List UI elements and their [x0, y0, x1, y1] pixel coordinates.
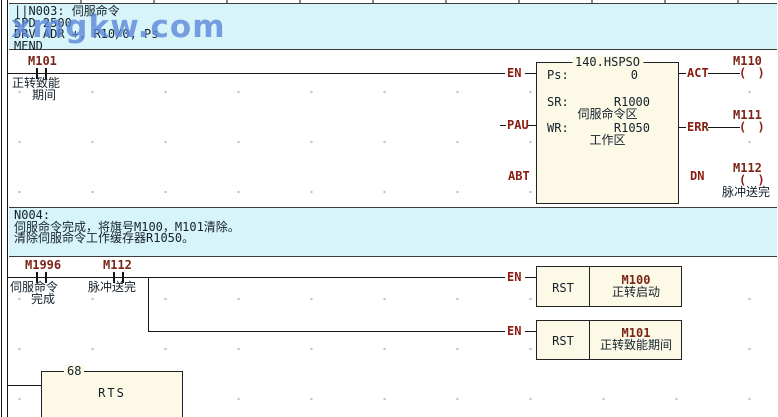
rst-op: RST [537, 335, 589, 347]
pin-abt: ABT [508, 170, 530, 182]
contact-comment: 期间 [12, 89, 76, 101]
wire [500, 125, 506, 126]
pin-en: EN [507, 271, 521, 283]
wire [525, 73, 536, 74]
wire [528, 125, 536, 126]
rst-block-m100[interactable]: RST M100 正转启动 [536, 266, 682, 307]
wire [525, 277, 536, 278]
rts-block[interactable]: 68 RTS [41, 371, 183, 417]
function-block-hspso[interactable]: 140.HSPSO Ps: 0 SR: R1000 伺服命令区 WR: R105… [536, 62, 679, 204]
pin-pau: PAU [507, 119, 529, 131]
ladder-editor: ||N003: 伺服命令 SPD 2500 DRV ADR +, R10/0, … [0, 0, 778, 417]
pin-act: ACT [687, 67, 709, 79]
left-power-rail-outer [1, 0, 2, 417]
pin-dn: DN [690, 170, 704, 182]
watermark: xmgkw.com [11, 12, 226, 43]
wire [679, 127, 686, 128]
wire [525, 331, 536, 332]
contact-device-label: M1996 [25, 259, 61, 271]
rst-comment: 正转致能期间 [590, 339, 682, 351]
wire [708, 127, 740, 128]
coil-m110[interactable]: ( ) [739, 67, 767, 79]
wire [8, 73, 505, 74]
network-comment-n004[interactable]: N004: 伺服命令完成，将旗号M100，M101清除。 清除伺服命令工作缓存器… [9, 207, 777, 257]
wire [8, 385, 41, 386]
param-comment: 伺服命令区 [537, 108, 678, 120]
rst-op: RST [537, 282, 589, 294]
param-label: Ps: [547, 69, 569, 81]
contact-device-label: M101 [28, 55, 57, 67]
step-number: 68 [64, 365, 84, 377]
coil-comment: 脉冲送完 [722, 186, 770, 198]
contact-device-label: M112 [103, 259, 132, 271]
pin-en: EN [507, 325, 521, 337]
wire [8, 277, 505, 278]
coil-m111[interactable]: ( ) [739, 121, 767, 133]
comment-line: 清除伺服命令工作缓存器R1050。 [14, 233, 777, 245]
function-block-title: 140.HSPSO [572, 56, 643, 68]
left-power-rail-inner [7, 0, 8, 417]
param-label: WR: [547, 122, 569, 134]
rts-op: RTS [42, 387, 182, 399]
rst-comment: 正转启动 [590, 286, 682, 298]
branch-wire [148, 277, 149, 332]
wire [148, 331, 505, 332]
param-label: SR: [547, 96, 569, 108]
wire [708, 73, 740, 74]
rst-block-m101[interactable]: RST M101 正转致能期间 [536, 320, 682, 360]
wire [679, 73, 686, 74]
contact-comment: 脉冲送完 [88, 281, 136, 293]
contact-comment: 完成 [10, 293, 76, 305]
param-value: 0 [631, 69, 638, 81]
pin-err: ERR [687, 121, 709, 133]
param-comment: 工作区 [537, 134, 678, 146]
pin-en: EN [507, 67, 521, 79]
